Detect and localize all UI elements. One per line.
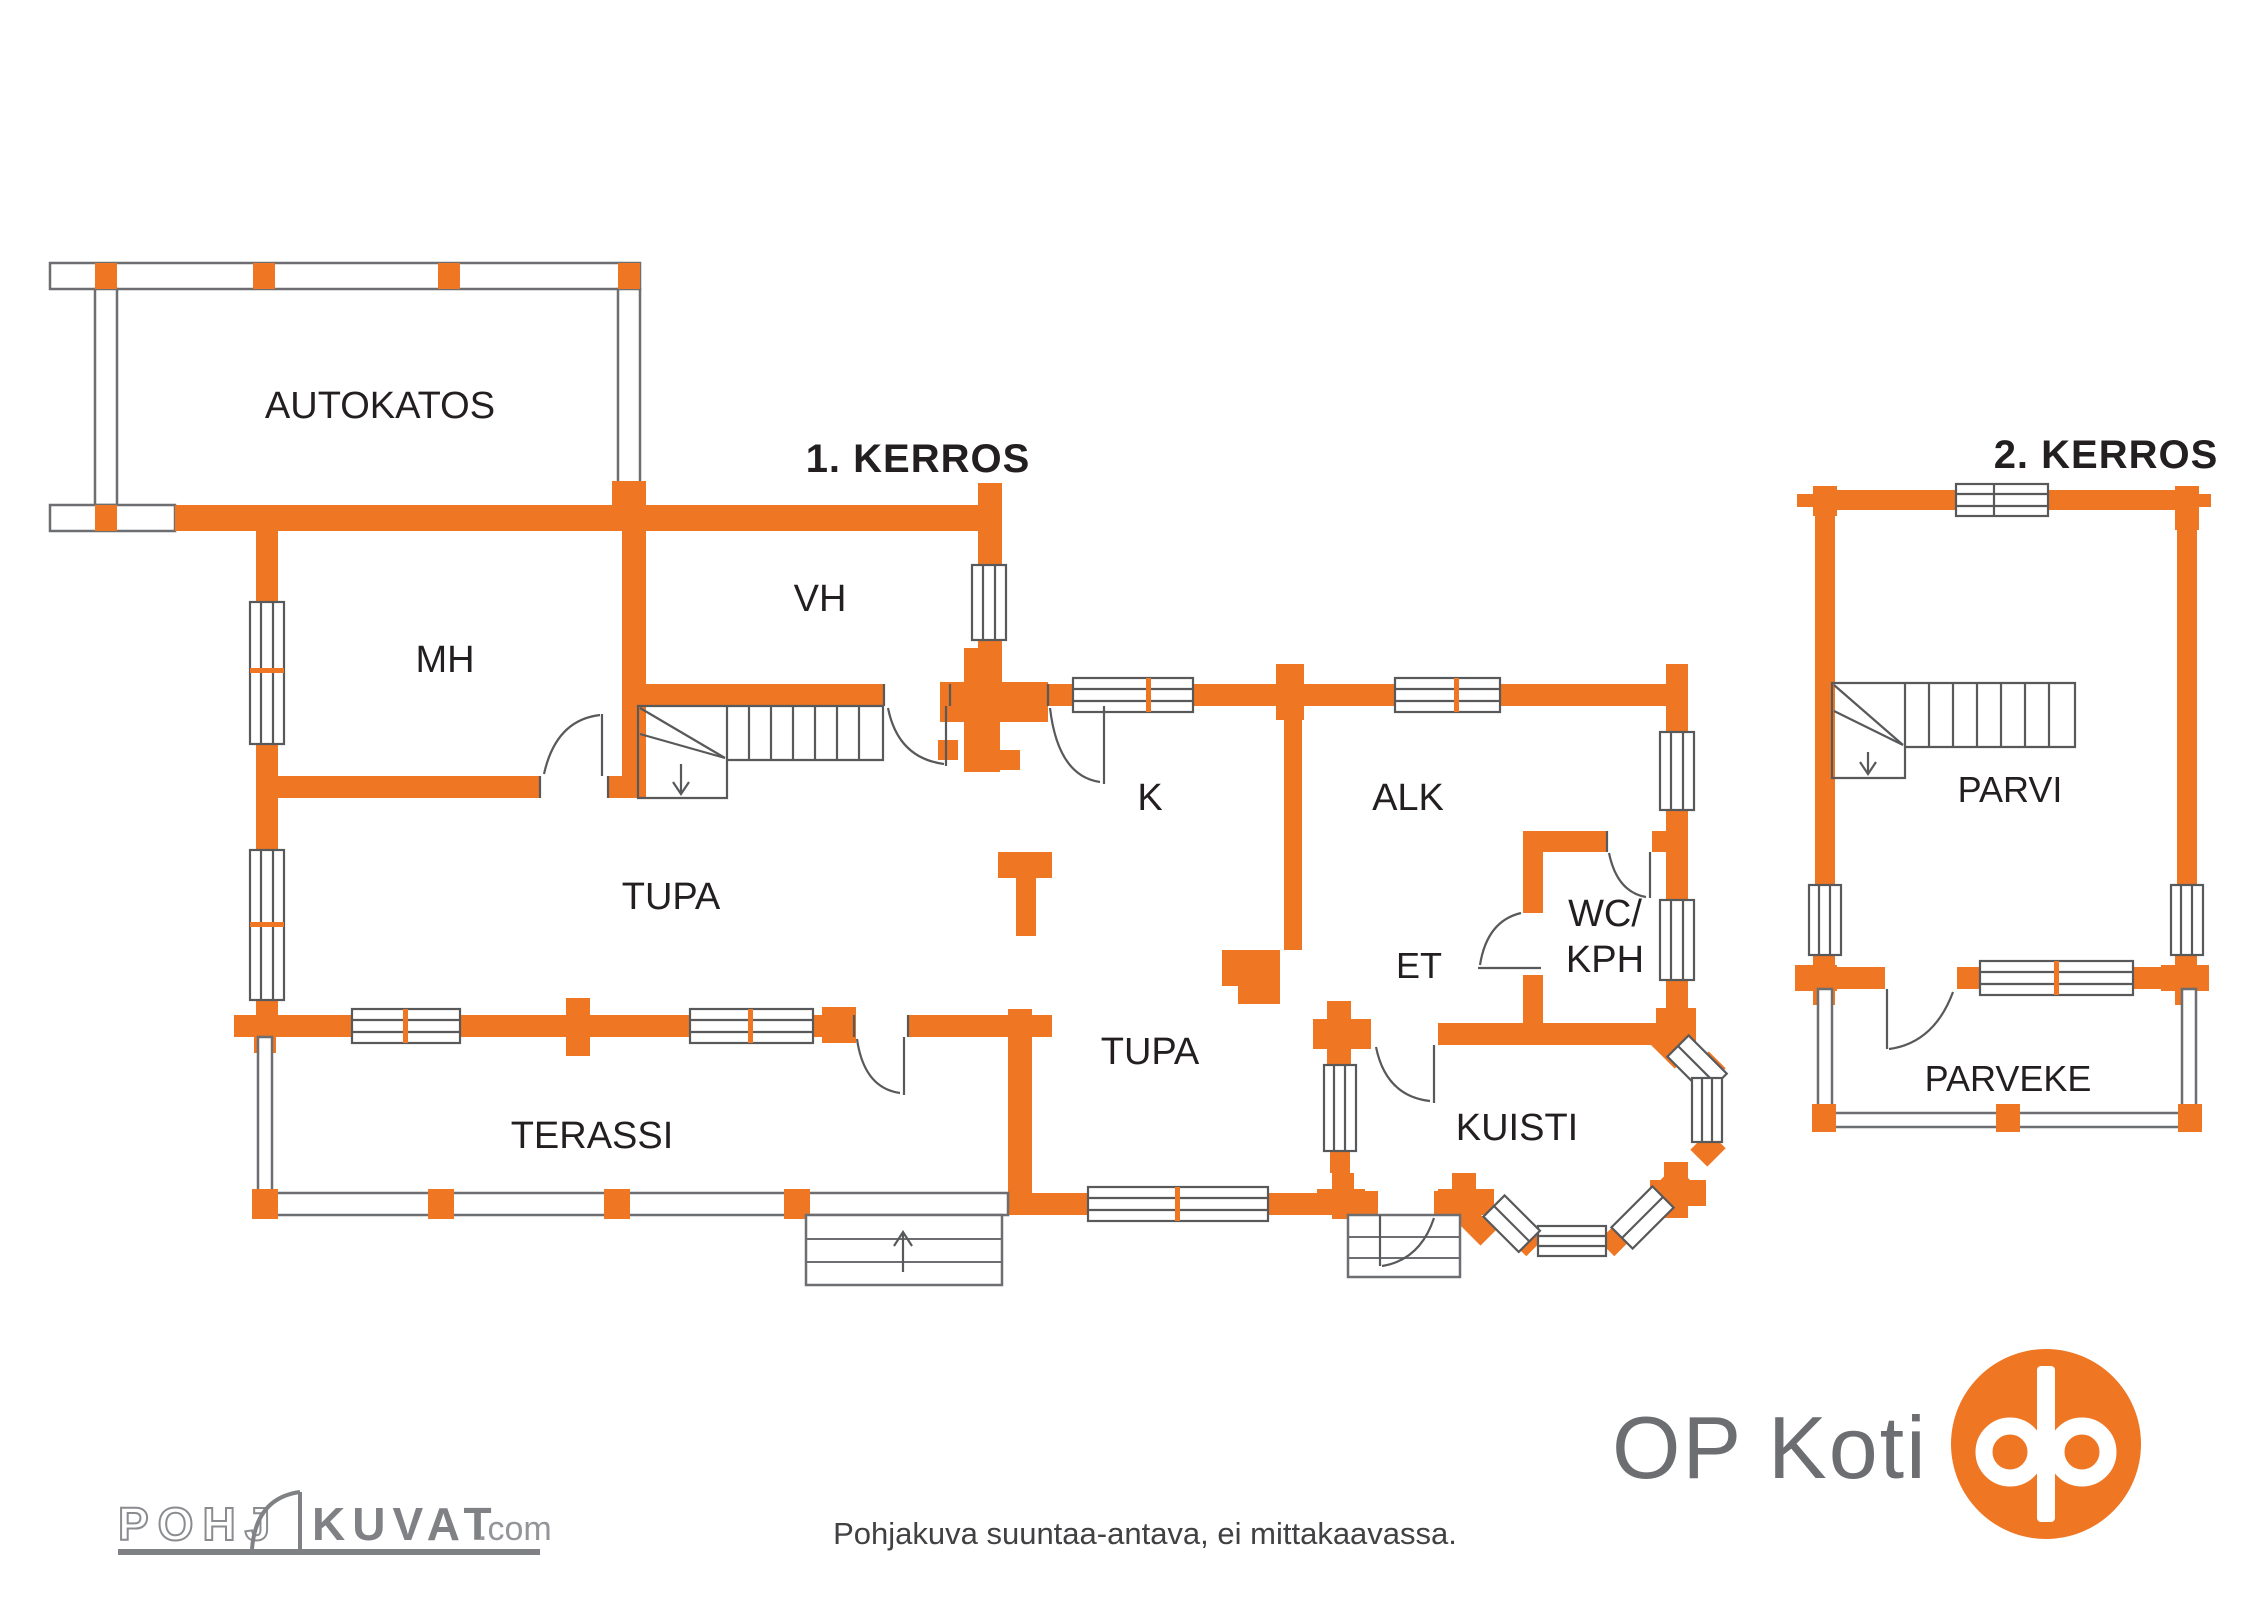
window-parvi-left bbox=[1809, 885, 1841, 955]
room-label-et: ET bbox=[1396, 945, 1442, 986]
room-label-parvi: PARVI bbox=[1958, 769, 2063, 810]
window-k-top bbox=[1073, 678, 1193, 712]
fireplace-block bbox=[1222, 950, 1280, 1004]
floor-plan-drawing: AUTOKATOS 1. KERROS bbox=[0, 0, 2262, 1600]
room-label-alk: ALK bbox=[1372, 777, 1444, 819]
window-alk-top bbox=[1395, 678, 1500, 712]
room-label-tupa-main: TUPA bbox=[622, 876, 721, 918]
door-terassi bbox=[854, 1015, 908, 1095]
window-parvi-top bbox=[1956, 484, 2048, 516]
room-label-parveke: PARVEKE bbox=[1925, 1058, 2092, 1099]
window-tupa-small bbox=[1088, 1187, 1268, 1221]
door-et-kuisti bbox=[1376, 1045, 1434, 1103]
window-terassi-2 bbox=[690, 1009, 813, 1043]
floor1-title: 1. KERROS bbox=[806, 437, 1031, 481]
stairs-floor2 bbox=[1832, 683, 2075, 778]
op-koti-logo: OP Koti bbox=[1612, 1349, 2141, 1539]
stairs-floor1 bbox=[638, 706, 883, 798]
window-tupa bbox=[250, 850, 284, 1000]
window-vh bbox=[972, 565, 1006, 640]
room-label-wc-line2: KPH bbox=[1566, 939, 1644, 981]
door-kuisti-exit bbox=[1348, 1215, 1460, 1277]
watermark-com: .com bbox=[478, 1510, 552, 1548]
floor2-title: 2. KERROS bbox=[1994, 433, 2219, 477]
pohjakuvat-watermark: POHJ KUVAT .com bbox=[118, 1492, 552, 1552]
bay-window-s bbox=[1538, 1226, 1606, 1256]
door-parveke bbox=[1887, 989, 1953, 1049]
window-alk-right bbox=[1660, 732, 1694, 810]
terassi-steps bbox=[806, 1215, 1002, 1285]
window-terassi-1 bbox=[352, 1009, 460, 1043]
room-label-vh: VH bbox=[794, 578, 847, 620]
op-koti-text: OP Koti bbox=[1612, 1398, 1928, 1497]
room-label-tupa-small: TUPA bbox=[1101, 1031, 1200, 1073]
window-kuisti-left bbox=[1324, 1065, 1356, 1151]
room-label-autokatos: AUTOKATOS bbox=[265, 385, 495, 427]
footer-disclaimer: Pohjakuva suuntaa-antava, ei mittakaavas… bbox=[833, 1516, 1457, 1551]
door-wc-et bbox=[1478, 913, 1541, 968]
watermark-kuvat: KUVAT bbox=[312, 1498, 499, 1550]
bay-window-e bbox=[1692, 1078, 1722, 1142]
terassi-deck bbox=[252, 1037, 1008, 1285]
op-logo-icon bbox=[1951, 1349, 2141, 1539]
room-label-terassi: TERASSI bbox=[511, 1115, 674, 1157]
window-parvi-right bbox=[2171, 885, 2203, 955]
window-parveke-divider bbox=[1980, 961, 2133, 995]
autokatos-carport: AUTOKATOS bbox=[50, 263, 646, 531]
watermark-pohj: POHJ bbox=[118, 1498, 279, 1550]
floor2-windows bbox=[1809, 484, 2203, 995]
room-label-wc-line1: WC/ bbox=[1568, 893, 1642, 935]
window-mh bbox=[250, 602, 284, 744]
room-label-k: K bbox=[1137, 777, 1162, 819]
door-mh bbox=[540, 714, 608, 798]
floor2-walls bbox=[1795, 486, 2211, 1005]
floor2-labels: PARVI PARVEKE bbox=[1925, 769, 2092, 1099]
room-label-kuisti: KUISTI bbox=[1456, 1107, 1578, 1149]
floor-plan-page: AUTOKATOS 1. KERROS bbox=[0, 0, 2262, 1600]
door-wc-alk bbox=[1607, 831, 1650, 898]
window-wc-right bbox=[1660, 900, 1694, 980]
room-label-mh: MH bbox=[415, 639, 474, 681]
stove-t-block bbox=[998, 852, 1052, 936]
